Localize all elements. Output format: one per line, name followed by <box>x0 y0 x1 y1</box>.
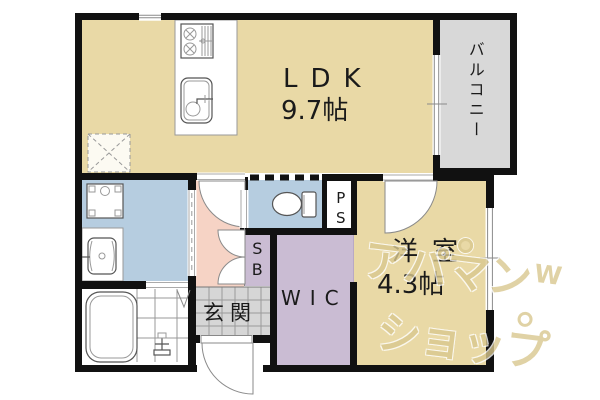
floorplan: LDK 9.7帖 バルコニー 洋室 4.3帖 WIC 玄関 SB PS アパマン… <box>0 0 600 400</box>
ldk-size-label: 9.7帖 <box>281 98 348 125</box>
genkan-label: 玄関 <box>203 302 257 324</box>
balcony-label: バルコニー <box>466 41 483 141</box>
wic-label: WIC <box>281 288 348 309</box>
pipe-space-label: PS <box>332 189 348 229</box>
western-room-label: 洋室 <box>392 239 472 266</box>
ldk-label: LDK <box>283 66 374 93</box>
shoe-box-label: SB <box>248 239 265 281</box>
western-room-size-label: 4.3帖 <box>377 272 444 299</box>
room-labels: LDK 9.7帖 バルコニー 洋室 4.3帖 WIC 玄関 SB PS <box>0 0 600 400</box>
